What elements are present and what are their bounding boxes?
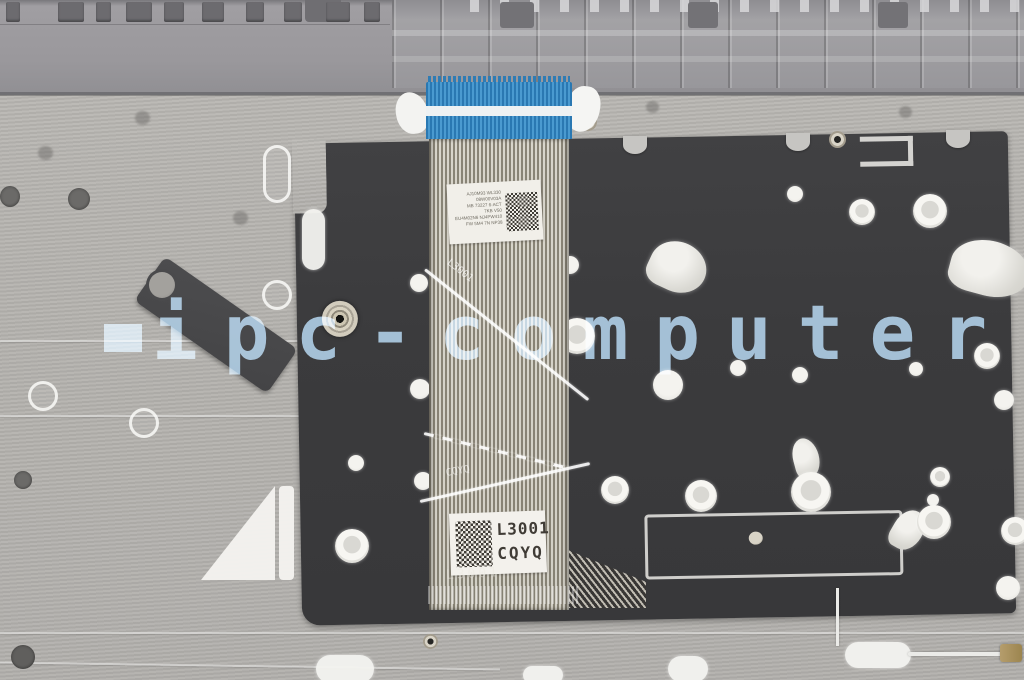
vent-slot xyxy=(246,2,264,22)
hinge-rib-bar xyxy=(392,30,1024,36)
triangle-flag-bar xyxy=(279,486,294,580)
wire-vertical xyxy=(836,588,839,646)
molded-stadium-filled xyxy=(302,209,325,270)
molded-circle-outline xyxy=(28,381,58,411)
hinge-rib-bar xyxy=(392,56,1024,62)
screw-mark xyxy=(38,146,53,160)
vent-slot xyxy=(364,2,380,22)
part-number-text: L3001 xyxy=(496,518,550,539)
rubber-dome xyxy=(996,576,1020,600)
screw-hole xyxy=(68,188,90,210)
screw-mark xyxy=(135,111,150,125)
product-photo: AJ10M93 WL330 08W00V03A MB 73227 6-ACT 7… xyxy=(0,0,1024,680)
bracket-clip xyxy=(860,136,914,167)
rubber-dome xyxy=(335,529,369,563)
panel-seam xyxy=(0,632,1024,634)
vent-slot xyxy=(6,2,20,22)
stabilizer-outline xyxy=(644,510,903,579)
molded-circle-outline xyxy=(129,408,159,438)
ffc-connector-white-stripe xyxy=(426,106,572,116)
rubber-dome xyxy=(348,455,364,471)
ghost-print: L3001 xyxy=(446,565,501,583)
hinge-socket xyxy=(688,2,718,28)
ffc-connector-blue-bottom xyxy=(426,116,572,139)
rubber-dome xyxy=(917,505,951,539)
info-label: AJ10M93 WL330 08W00V03A MB 73227 6-ACT 7… xyxy=(446,180,543,245)
rubber-dome xyxy=(791,472,831,512)
data-matrix-code xyxy=(505,192,539,232)
vent-slot xyxy=(126,2,152,22)
screw-mark xyxy=(899,106,912,118)
watermark-text: ipc-computer xyxy=(152,288,1013,377)
molded-stadium-outline xyxy=(263,145,291,203)
part-code-text: CQYQ xyxy=(497,542,544,563)
rubber-dome xyxy=(994,390,1014,410)
plastic-pad xyxy=(668,656,708,680)
panel-seam xyxy=(0,662,500,671)
rubber-dome xyxy=(685,480,717,512)
vent-slot xyxy=(284,2,302,22)
screw-hole xyxy=(14,471,32,489)
vent-slot xyxy=(164,2,184,22)
screw-hole xyxy=(0,186,20,207)
vent-slot xyxy=(202,2,224,22)
cable-holder xyxy=(845,642,911,668)
metal-tab xyxy=(623,136,647,154)
hinge-socket xyxy=(500,2,534,28)
watermark-logo-square xyxy=(104,324,142,352)
screw-mark xyxy=(646,101,659,113)
plastic-pad xyxy=(316,655,374,680)
hinge-socket xyxy=(878,2,908,28)
cable-end-glint xyxy=(428,586,578,604)
band-seam xyxy=(0,24,390,25)
rubber-dome xyxy=(930,467,950,487)
wire-horizontal xyxy=(908,652,1002,656)
vent-slot xyxy=(326,2,350,22)
triangle-flag-mark xyxy=(201,486,275,580)
data-matrix-code xyxy=(455,520,493,567)
vent-slot xyxy=(58,2,84,22)
screw-hole xyxy=(11,645,35,669)
rubber-dome xyxy=(1001,517,1024,545)
plate-notch xyxy=(292,139,327,214)
screw-mark xyxy=(233,211,248,225)
screw-eyelet xyxy=(829,131,846,148)
vent-slot xyxy=(96,2,111,22)
plastic-pad xyxy=(523,666,563,680)
rubber-dome xyxy=(849,199,875,225)
rubber-dome xyxy=(787,186,803,202)
rubber-dome xyxy=(913,194,947,228)
rubber-dome xyxy=(601,476,629,504)
hinge-teeth xyxy=(470,0,1024,12)
ffc-connector-blue-top xyxy=(426,82,572,106)
screw-eyelet xyxy=(423,634,438,649)
metal-tab xyxy=(946,130,970,148)
antenna-connector xyxy=(1000,644,1022,662)
metal-tab xyxy=(786,133,810,151)
